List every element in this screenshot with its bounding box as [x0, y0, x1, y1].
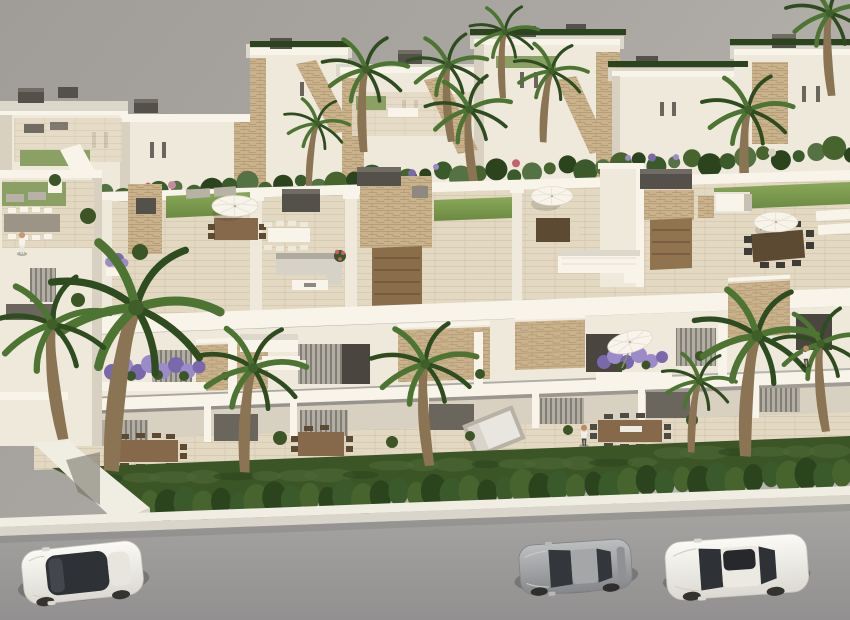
lawn-patch [342, 471, 378, 479]
lawn-patch [472, 460, 500, 468]
umbrella [754, 212, 798, 232]
shrub [756, 146, 770, 160]
glass-opening [342, 344, 370, 384]
shrub [793, 150, 805, 162]
stone-feature-panel [515, 314, 585, 370]
day-bed-white [714, 192, 752, 213]
lawn-patch [809, 444, 850, 458]
stone-planter [698, 196, 714, 218]
hedge-bush [388, 478, 408, 506]
flower-accent [168, 181, 176, 189]
divider-wall [345, 196, 357, 314]
flower-accent [625, 155, 631, 161]
shrub [485, 158, 507, 180]
curtained-opening [540, 398, 584, 424]
flower-accent [512, 159, 520, 167]
dining-set-gray [4, 207, 60, 240]
glass-opening [214, 414, 258, 441]
terrace-plant [386, 436, 398, 448]
roof-lawn-strip [434, 197, 512, 221]
hedge-bush [547, 470, 569, 500]
pillar [638, 388, 645, 424]
shrub [720, 153, 736, 169]
roof-plant [80, 208, 96, 224]
hedge-bush [636, 465, 658, 495]
sun-lounger [28, 192, 46, 200]
shrub [822, 136, 846, 160]
plant [71, 293, 85, 307]
curtained-opening [758, 388, 800, 412]
back-hedge-line [250, 41, 350, 47]
shrub [295, 175, 307, 187]
lawn-patch [433, 458, 475, 472]
flower-accent [673, 154, 679, 160]
lawn-patch [213, 472, 257, 480]
architectural-render [0, 0, 850, 620]
terrace-plant [475, 369, 485, 379]
terrace-plant [465, 431, 475, 441]
back-hedge-line [608, 61, 748, 67]
terrace-plant [563, 425, 573, 435]
pillar [532, 392, 539, 428]
roof-cap-block [282, 189, 320, 212]
car-silver-coupe [512, 536, 639, 599]
pillar [204, 406, 211, 442]
shrub [544, 162, 556, 174]
hedge-bush [743, 464, 763, 492]
flower-accent [648, 154, 656, 162]
back-hedge-line [730, 39, 850, 45]
stone-clad-wall [128, 184, 162, 254]
shrub [698, 153, 722, 177]
flower-accent [768, 149, 776, 157]
lawn-patch [252, 471, 282, 481]
divider-wall [512, 190, 522, 302]
planter-cube [48, 174, 62, 193]
lawn-patch [589, 459, 633, 467]
car-white-sedan [660, 531, 812, 604]
roof-plant [132, 244, 148, 260]
lawn-patch [627, 457, 657, 467]
divider-wall [250, 198, 262, 316]
render-canvas [0, 0, 850, 620]
red-flower-pot [334, 250, 346, 262]
flower-accent [433, 164, 439, 170]
pillar [290, 402, 297, 438]
sun-lounger [6, 194, 24, 202]
